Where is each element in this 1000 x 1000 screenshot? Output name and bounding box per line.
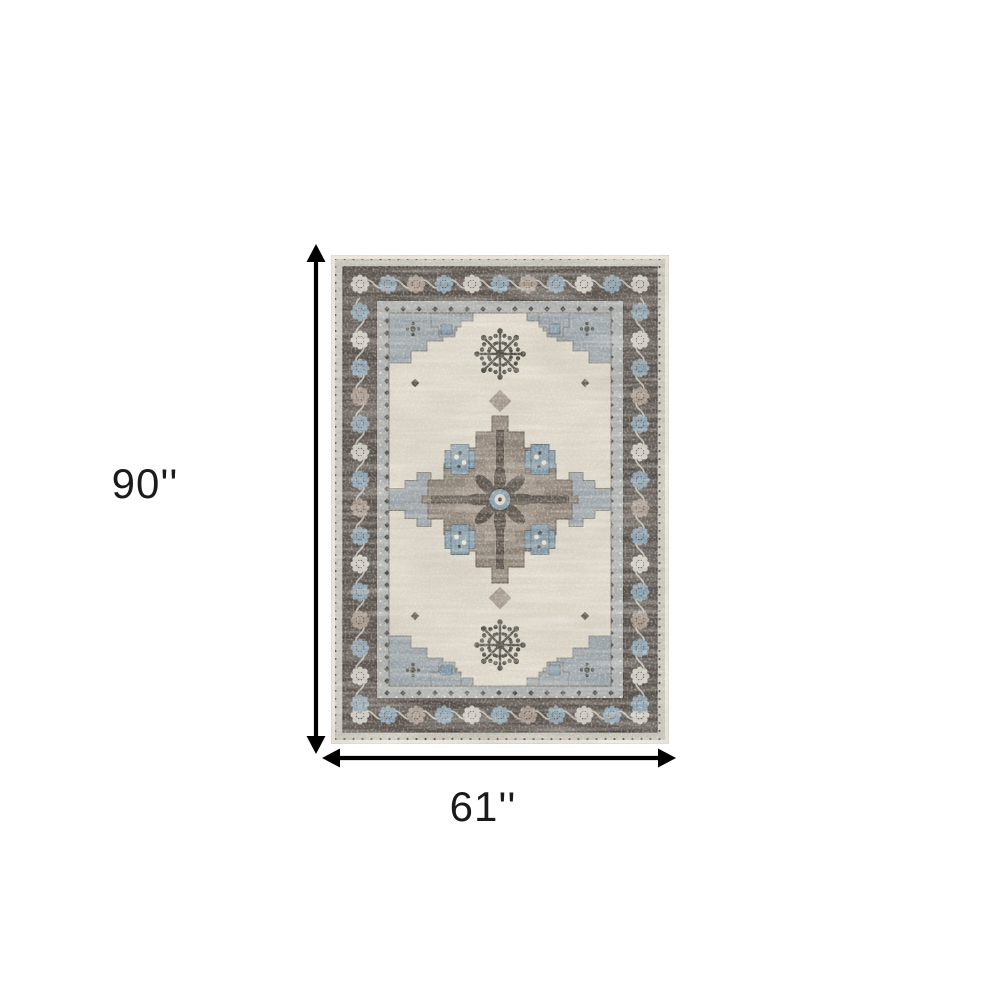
arrow-left-icon bbox=[322, 749, 340, 768]
arrow-up-icon bbox=[307, 244, 326, 262]
height-dimension-arrow bbox=[300, 243, 332, 755]
height-dimension-label: 90'' bbox=[95, 463, 195, 505]
rug-product-image bbox=[331, 255, 669, 744]
arrow-right-icon bbox=[658, 749, 676, 768]
dimension-diagram: 90'' 61'' bbox=[0, 0, 1000, 1000]
width-dimension-label: 61'' bbox=[433, 786, 533, 828]
width-dimension-arrow bbox=[321, 742, 677, 774]
